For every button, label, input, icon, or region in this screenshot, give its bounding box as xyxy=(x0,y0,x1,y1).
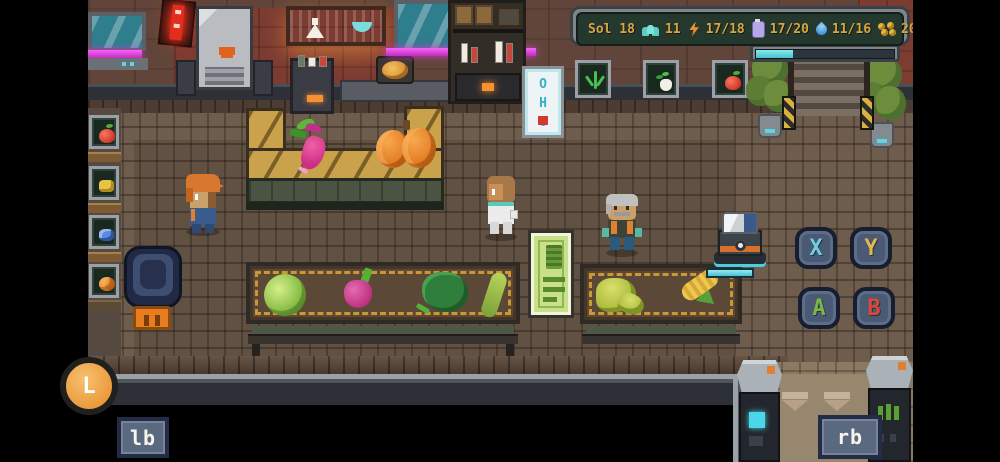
rack-ledge xyxy=(88,300,121,310)
radish-leaf-magenta xyxy=(305,122,323,135)
player-strap xyxy=(191,209,195,221)
yellow-fruit-item xyxy=(99,180,114,192)
magenta-neon-left xyxy=(88,50,142,58)
hud-sol-label: Sol 18 xyxy=(588,22,635,37)
cart-item xyxy=(308,57,316,67)
counter-pumpkins xyxy=(376,118,438,176)
player-hair-tip xyxy=(216,182,224,189)
hud-oxygen: 17/20 xyxy=(752,21,809,38)
player-hair-side xyxy=(186,188,193,202)
rack-frame-blue xyxy=(89,215,119,249)
brick-edge-row xyxy=(88,356,788,374)
radish-leaf xyxy=(289,128,306,139)
rack-frame-yellow xyxy=(89,166,119,200)
elder-strap xyxy=(627,221,633,234)
button-x[interactable]: X xyxy=(795,227,837,269)
kiosk-text-row xyxy=(543,297,557,302)
blue-fruit-item xyxy=(99,229,114,241)
flask-icon xyxy=(306,16,324,38)
stall-leg xyxy=(506,344,514,356)
kiosk-screen xyxy=(749,412,765,428)
pedestal-right xyxy=(253,60,273,96)
sill-light xyxy=(122,62,126,66)
npc-hand xyxy=(510,210,518,219)
green-bottle xyxy=(894,406,899,420)
hud-progress xyxy=(750,44,900,62)
hud-colonists: 11 xyxy=(642,22,681,37)
elder-eye xyxy=(626,206,629,210)
counter-front-face xyxy=(246,178,444,204)
turnip-leaf xyxy=(662,72,669,76)
lab-sign xyxy=(286,6,386,46)
kiosk-text-row xyxy=(543,277,565,282)
window-left xyxy=(88,12,146,50)
shelf-line xyxy=(453,29,523,33)
elder-strap xyxy=(611,221,617,234)
apple-icon xyxy=(725,76,741,90)
radish xyxy=(344,280,372,308)
rover-robot[interactable] xyxy=(710,210,770,268)
kale xyxy=(422,272,468,312)
cabbage xyxy=(264,274,306,316)
cart-item xyxy=(319,56,327,67)
hud-progress-fill xyxy=(756,50,793,58)
game-screen: OHO xyxy=(0,0,1000,462)
stall-leg xyxy=(252,344,260,356)
down-arrow xyxy=(824,392,850,412)
apple-item xyxy=(99,129,115,143)
vending-red-key xyxy=(538,116,548,125)
stool-sign xyxy=(133,306,171,330)
crate xyxy=(475,5,493,25)
bottle xyxy=(461,43,468,63)
elder-legs xyxy=(624,237,634,250)
npc-collar xyxy=(488,202,514,206)
bottle xyxy=(471,47,478,63)
stall-right-base xyxy=(582,334,740,344)
sprout-icon xyxy=(596,75,605,87)
scientist-npc[interactable] xyxy=(480,176,522,240)
player-legs xyxy=(205,224,214,233)
elder-legs xyxy=(610,237,620,250)
charge-strip xyxy=(706,268,754,278)
elder-glove xyxy=(635,228,642,237)
hud-energy-value: 17/18 xyxy=(706,22,745,37)
door-vents xyxy=(205,67,244,85)
player-eye xyxy=(195,194,198,200)
hazard-post-right xyxy=(860,96,874,130)
sprout-icon xyxy=(594,71,597,89)
player-character[interactable] xyxy=(180,174,226,236)
pumpkin-stem xyxy=(403,120,410,130)
cart-slot xyxy=(307,95,323,102)
platform-body xyxy=(88,383,745,405)
button-y[interactable]: Y xyxy=(850,227,892,269)
elder-sideburn xyxy=(606,204,611,214)
vending-machine[interactable]: OHO xyxy=(522,66,564,138)
pedestal-left xyxy=(176,60,196,96)
bottle-shelf xyxy=(448,0,526,104)
button-rb-label: rb xyxy=(837,425,863,449)
colonists-icon xyxy=(642,23,660,36)
leaf-battery-icon xyxy=(546,245,562,269)
rack-ledge xyxy=(88,203,121,213)
letterbox-right xyxy=(913,0,1000,462)
stall-left[interactable] xyxy=(246,262,520,324)
stall-right-shelf xyxy=(586,326,736,334)
pumpkin-item xyxy=(99,277,115,291)
down-arrow xyxy=(782,392,808,412)
button-l-label: L xyxy=(82,374,95,399)
sign-apple xyxy=(712,60,748,98)
player-legs xyxy=(192,224,201,233)
hud-panel: Sol 18 11 17/18 17/20 11/16 xyxy=(570,6,910,46)
pumpkin xyxy=(402,128,436,168)
plant-pot xyxy=(758,114,782,138)
hud-money-value: 200g xyxy=(901,22,913,37)
window-sill xyxy=(88,58,148,70)
neon-glyph xyxy=(173,24,179,29)
rack-frame-apple xyxy=(89,115,119,149)
sprout-icon xyxy=(585,75,594,87)
npc-legs xyxy=(490,222,499,234)
counter-base xyxy=(246,202,444,210)
button-l[interactable]: L xyxy=(60,357,118,415)
sign-turnip xyxy=(643,60,679,98)
green-bottle xyxy=(886,404,891,420)
pizza xyxy=(382,61,408,79)
food-tray xyxy=(376,56,414,84)
lower-room-void xyxy=(88,405,733,462)
elder-npc[interactable] xyxy=(600,194,644,256)
rack-frame-pumpkin xyxy=(89,264,119,298)
elder-mustache xyxy=(614,212,630,216)
apple-leaf xyxy=(106,124,113,128)
bowl-icon xyxy=(352,22,372,32)
green-kiosk[interactable] xyxy=(528,230,574,318)
npc-eye xyxy=(492,189,495,195)
neon-glyph xyxy=(175,10,181,15)
robot-head xyxy=(722,212,758,234)
button-x-label: X xyxy=(809,236,822,261)
npc-legs xyxy=(503,222,512,234)
energy-bolt-icon xyxy=(688,22,701,37)
elder-eye xyxy=(614,206,617,210)
hazard-post-left xyxy=(782,96,796,130)
coins-icon xyxy=(878,22,896,36)
elder-glove xyxy=(602,228,609,237)
plant-foliage xyxy=(876,86,906,120)
rack-ledge xyxy=(88,252,121,262)
hud-colonists-value: 11 xyxy=(665,22,681,37)
apple-leaf xyxy=(733,71,740,75)
button-lb[interactable]: lb xyxy=(117,417,169,458)
metal-door xyxy=(196,6,253,90)
stall-left-shelf xyxy=(252,326,514,334)
oxygen-tank-icon xyxy=(752,21,765,38)
kiosk-text-row xyxy=(543,287,565,292)
hud-money: 200g xyxy=(878,22,913,37)
button-y-label: Y xyxy=(864,236,877,261)
hud-water-value: 11/16 xyxy=(832,22,871,37)
red-neon-sign xyxy=(158,0,197,48)
door-label xyxy=(219,47,235,55)
shelf-vent xyxy=(455,73,521,101)
bottle xyxy=(495,41,503,63)
hud-oxygen-value: 17/20 xyxy=(770,22,809,37)
counter-radish xyxy=(288,118,334,182)
cart-item xyxy=(298,55,305,67)
button-a-label: A xyxy=(812,296,825,321)
hud-energy: 17/18 xyxy=(688,22,745,37)
bottle xyxy=(506,43,513,63)
stool xyxy=(124,246,182,308)
button-lb-label: lb xyxy=(130,426,156,450)
kiosk-machine-left xyxy=(737,360,782,462)
supply-cart xyxy=(290,58,334,114)
rack-ledge xyxy=(88,152,121,162)
sign-sprout xyxy=(575,60,611,98)
vending-text: OHO xyxy=(537,77,550,134)
crate xyxy=(499,9,519,25)
turnip-icon xyxy=(660,79,672,91)
game-viewport[interactable]: OHO xyxy=(88,0,913,462)
hud-water: 11/16 xyxy=(816,22,871,37)
sill-light2 xyxy=(130,62,134,66)
stall-left-base xyxy=(248,334,518,344)
button-b-label: B xyxy=(867,296,880,321)
water-drop-icon xyxy=(814,21,830,37)
button-rb[interactable]: rb xyxy=(818,415,882,459)
crate xyxy=(455,5,473,25)
button-a[interactable]: A xyxy=(798,287,840,329)
button-b[interactable]: B xyxy=(853,287,895,329)
